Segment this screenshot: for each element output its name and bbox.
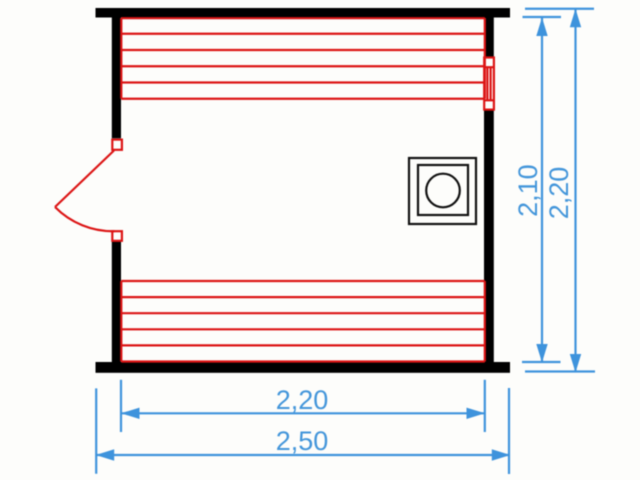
svg-text:2,20: 2,20	[276, 385, 329, 415]
svg-text:2,20: 2,20	[544, 167, 574, 220]
svg-text:2,10: 2,10	[513, 164, 543, 217]
svg-text:2,50: 2,50	[276, 426, 329, 456]
